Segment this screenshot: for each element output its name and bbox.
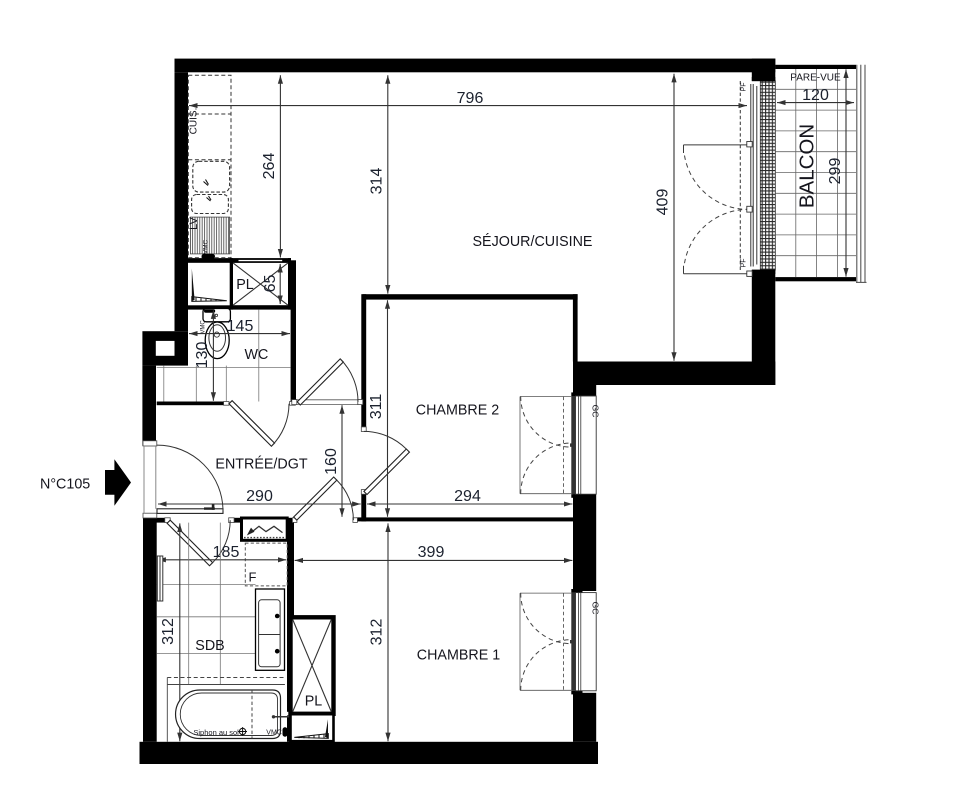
svg-text:290: 290	[246, 488, 273, 505]
svg-text:GC: GC	[591, 405, 601, 418]
svg-text:PL: PL	[305, 694, 323, 710]
svg-text:N°C105: N°C105	[40, 477, 90, 493]
svg-text:399: 399	[418, 544, 445, 561]
svg-text:130: 130	[194, 342, 211, 369]
svg-text:65: 65	[262, 275, 279, 293]
svg-text:120: 120	[802, 87, 829, 104]
svg-text:CHAMBRE 1: CHAMBRE 1	[417, 648, 500, 664]
svg-text:GC: GC	[591, 602, 601, 615]
svg-text:312: 312	[369, 619, 386, 646]
svg-text:294: 294	[454, 488, 481, 505]
svg-text:312: 312	[160, 618, 177, 645]
svg-text:299: 299	[827, 158, 844, 185]
svg-text:Siphon au sol: Siphon au sol	[193, 728, 239, 737]
svg-text:CUIS.: CUIS.	[189, 108, 200, 135]
svg-text:BALCON: BALCON	[796, 124, 819, 208]
svg-text:409: 409	[655, 189, 672, 216]
svg-text:311: 311	[368, 394, 385, 420]
svg-text:145: 145	[227, 318, 254, 335]
svg-text:SÉJOUR/CUISINE: SÉJOUR/CUISINE	[473, 233, 593, 250]
svg-text:PF: PF	[741, 259, 748, 268]
svg-text:264: 264	[261, 153, 278, 180]
svg-text:LV: LV	[188, 217, 200, 230]
svg-text:160: 160	[323, 448, 340, 475]
svg-text:796: 796	[457, 90, 484, 107]
svg-text:VMC: VMC	[203, 239, 210, 254]
svg-text:ENTRÉE/DGT: ENTRÉE/DGT	[215, 456, 307, 473]
svg-text:PF: PF	[741, 83, 748, 92]
svg-text:PARE-VUE: PARE-VUE	[790, 72, 841, 83]
svg-text:VMC: VMC	[201, 320, 207, 334]
svg-text:SDB: SDB	[195, 638, 224, 654]
svg-text:CHAMBRE 2: CHAMBRE 2	[416, 403, 499, 419]
svg-text:F: F	[249, 570, 257, 585]
svg-text:WC: WC	[244, 347, 268, 363]
svg-text:185: 185	[213, 544, 240, 561]
svg-text:314: 314	[369, 168, 386, 195]
svg-text:VMC: VMC	[266, 729, 282, 736]
svg-text:PL: PL	[236, 277, 254, 293]
